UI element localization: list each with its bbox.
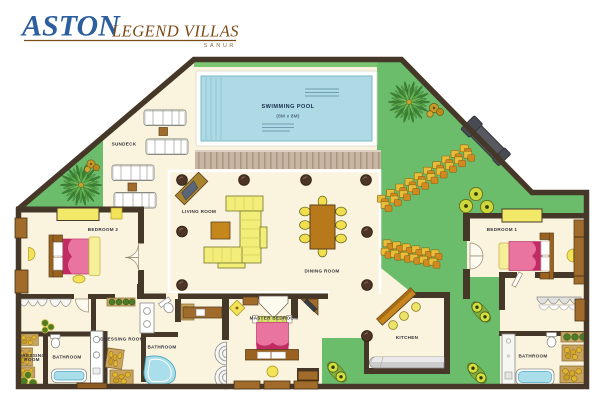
svg-text:ROOM: ROOM: [24, 357, 40, 362]
svg-text:KITCHEN: KITCHEN: [396, 335, 419, 340]
svg-text:LEGEND VILLAS: LEGEND VILLAS: [111, 22, 239, 41]
svg-text:DRESSING ROOM: DRESSING ROOM: [100, 337, 143, 342]
svg-text:BATHROOM: BATHROOM: [52, 355, 81, 360]
svg-text:SUNDECK: SUNDECK: [112, 142, 137, 147]
svg-text:(8M x 8M): (8M x 8M): [276, 114, 300, 119]
svg-text:ASTON: ASTON: [20, 10, 121, 43]
svg-text:BATHROOM: BATHROOM: [147, 345, 176, 350]
svg-text:LIVING ROOM: LIVING ROOM: [182, 209, 216, 214]
svg-text:BEDROOM 1: BEDROOM 1: [487, 227, 518, 232]
svg-text:MASTER BEDROOM: MASTER BEDROOM: [250, 316, 299, 321]
svg-text:SWIMMING POOL: SWIMMING POOL: [262, 104, 315, 110]
svg-text:BATHROOM: BATHROOM: [518, 354, 547, 359]
svg-text:BEDROOM 2: BEDROOM 2: [88, 227, 119, 232]
svg-text:SANUR: SANUR: [204, 43, 236, 49]
svg-text:DINING ROOM: DINING ROOM: [305, 269, 340, 274]
